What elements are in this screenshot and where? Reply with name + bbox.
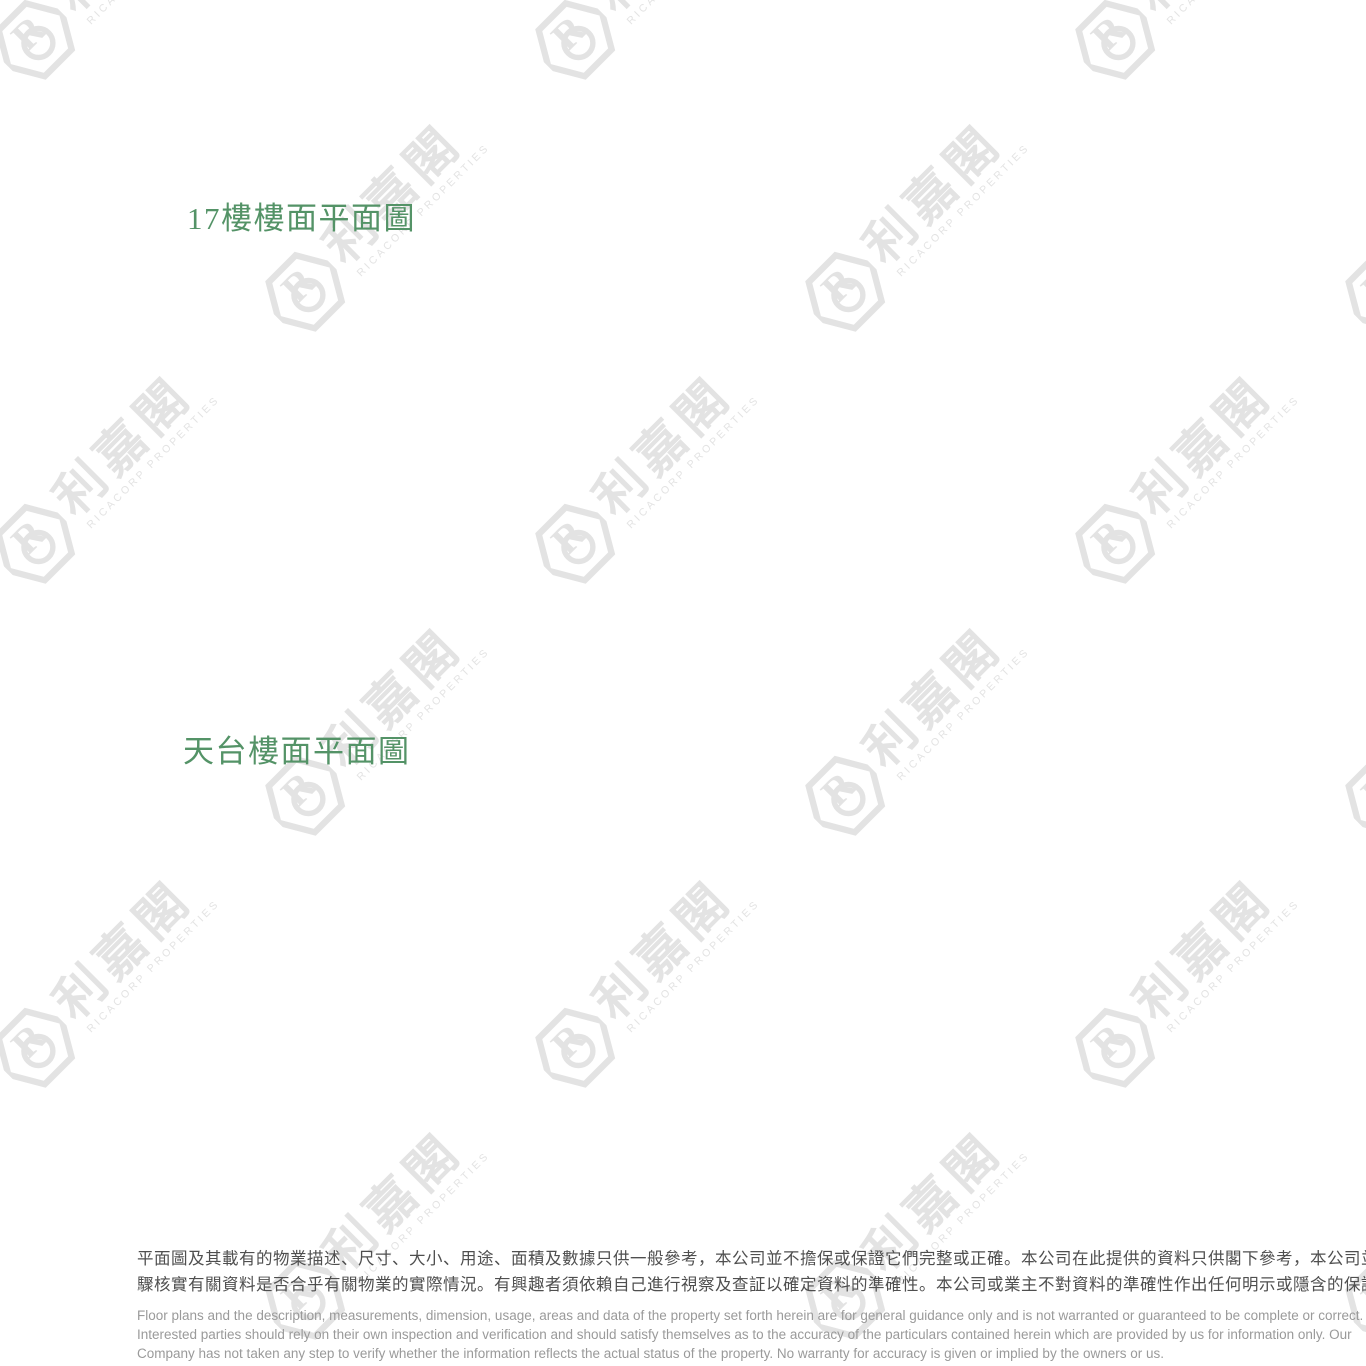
disclaimer: 平面圖及其載有的物業描述、尺寸、大小、用途、面積及數據只供一般參考，本公司並不擔… [137, 1246, 1337, 1363]
disclaimer-english: Floor plans and the description, measure… [137, 1306, 1337, 1363]
disclaimer-en-line-3: Company has not taken any step to verify… [137, 1344, 1337, 1363]
disclaimer-en-line-2: Interested parties should rely on their … [137, 1325, 1337, 1344]
roof-title: 天台樓面平面圖 [183, 726, 411, 771]
disclaimer-cn-line-2: 驟核實有關資料是否合乎有關物業的實際情況。有興趣者須依賴自己進行視察及查証以確定… [137, 1272, 1337, 1298]
disclaimer-chinese: 平面圖及其載有的物業描述、尺寸、大小、用途、面積及數據只供一般參考，本公司並不擔… [137, 1246, 1337, 1298]
floor-plan-page: R利嘉閣RICACORP PROPERTIESR利嘉閣RICACORP PROP… [0, 0, 1366, 1366]
disclaimer-cn-line-1: 平面圖及其載有的物業描述、尺寸、大小、用途、面積及數據只供一般參考，本公司並不擔… [137, 1246, 1337, 1272]
disclaimer-en-line-1: Floor plans and the description, measure… [137, 1306, 1337, 1325]
floor-17-title: 17樓樓面平面圖 [187, 193, 416, 238]
page-content: 17樓樓面平面圖 天台樓面平面圖 平面圖及其載有的物業描述、尺寸、大小、用途、面… [0, 0, 1366, 1366]
